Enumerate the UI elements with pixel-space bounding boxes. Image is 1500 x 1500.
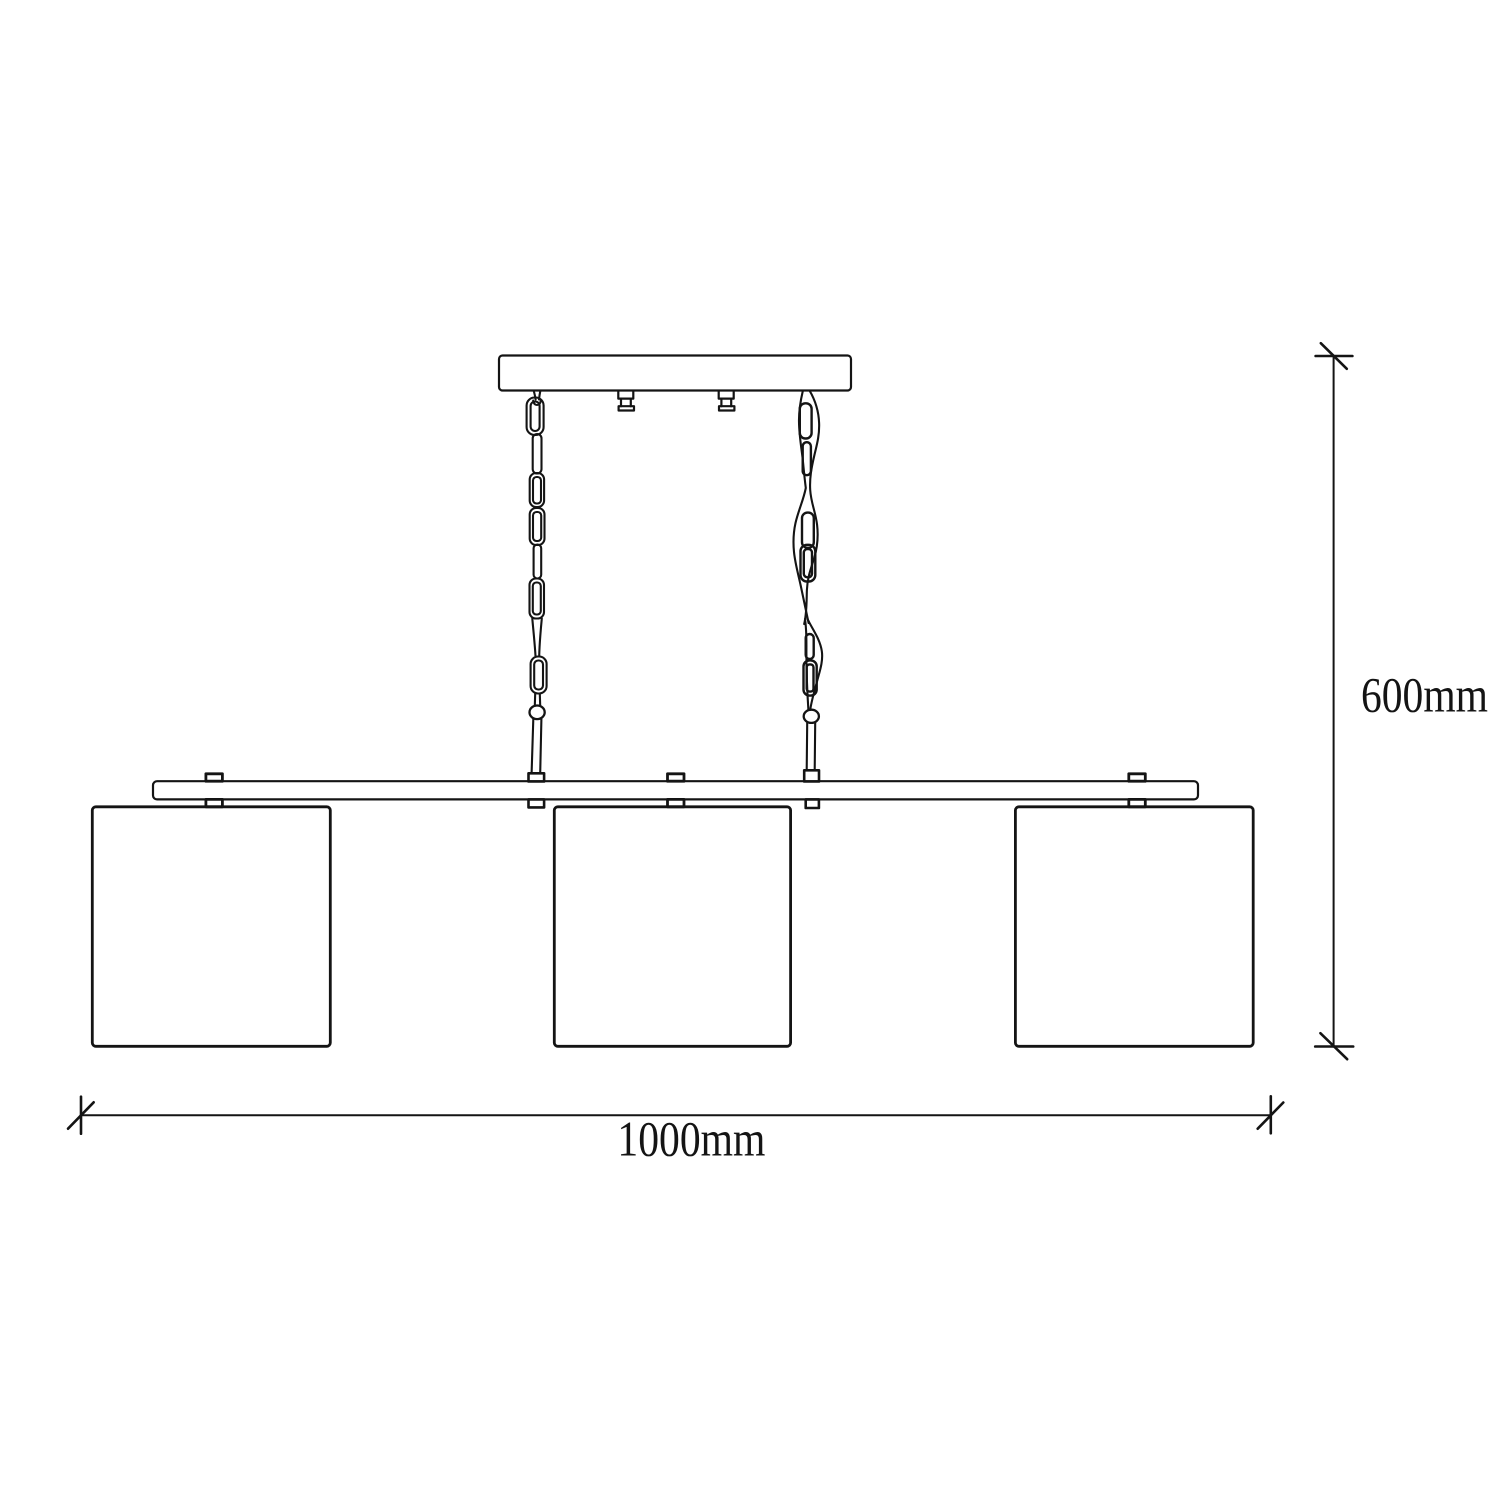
svg-text:1000mm: 1000mm [617, 1110, 765, 1166]
svg-text:600mm: 600mm [1361, 666, 1488, 722]
